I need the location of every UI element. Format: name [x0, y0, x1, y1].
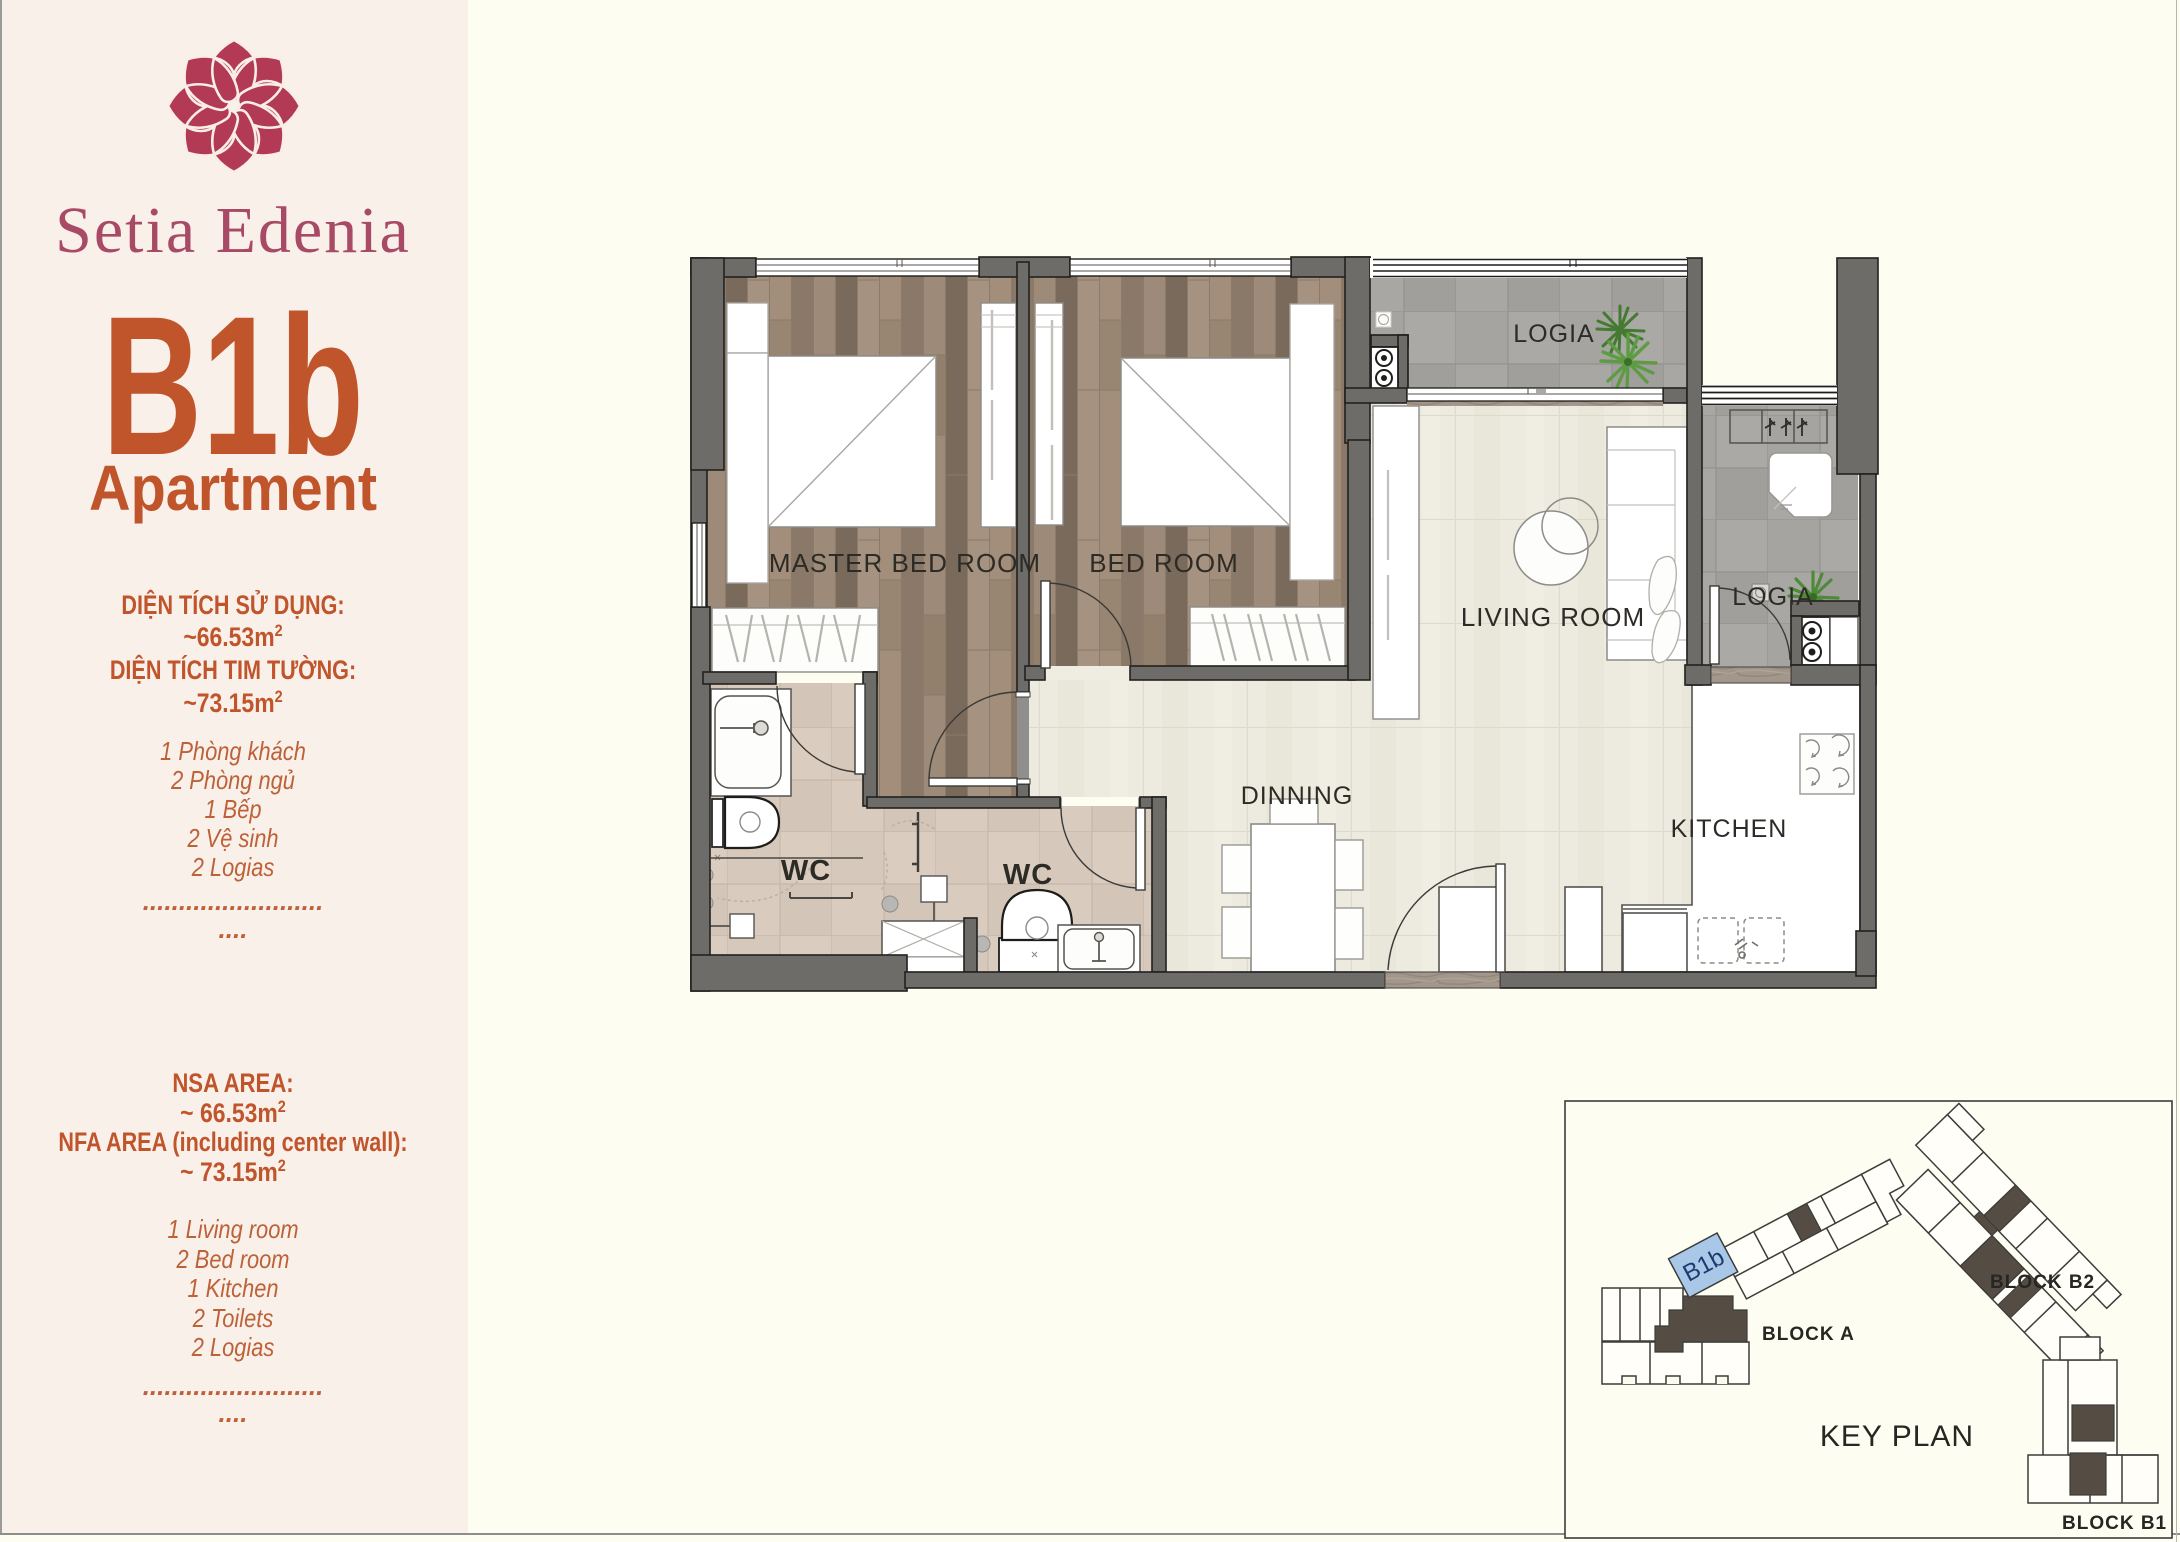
svg-text:BLOCK B2: BLOCK B2 [1990, 1272, 2095, 1293]
svg-text:WC: WC [781, 855, 831, 887]
svg-text:DINNING: DINNING [1241, 782, 1354, 810]
svg-text:LIVING ROOM: LIVING ROOM [1461, 602, 1645, 632]
svg-text:MASTER BED ROOM: MASTER BED ROOM [769, 548, 1041, 578]
svg-text:BLOCK B1: BLOCK B1 [2062, 1513, 2167, 1534]
svg-text:BED ROOM: BED ROOM [1089, 548, 1239, 578]
svg-text:LOGIA: LOGIA [1732, 583, 1813, 611]
svg-text:BLOCK A: BLOCK A [1762, 1324, 1855, 1345]
svg-text:LOGIA: LOGIA [1513, 320, 1594, 348]
svg-text:KEY PLAN: KEY PLAN [1820, 1420, 1974, 1453]
svg-text:KITCHEN: KITCHEN [1671, 815, 1788, 843]
svg-text:WC: WC [1003, 859, 1053, 891]
